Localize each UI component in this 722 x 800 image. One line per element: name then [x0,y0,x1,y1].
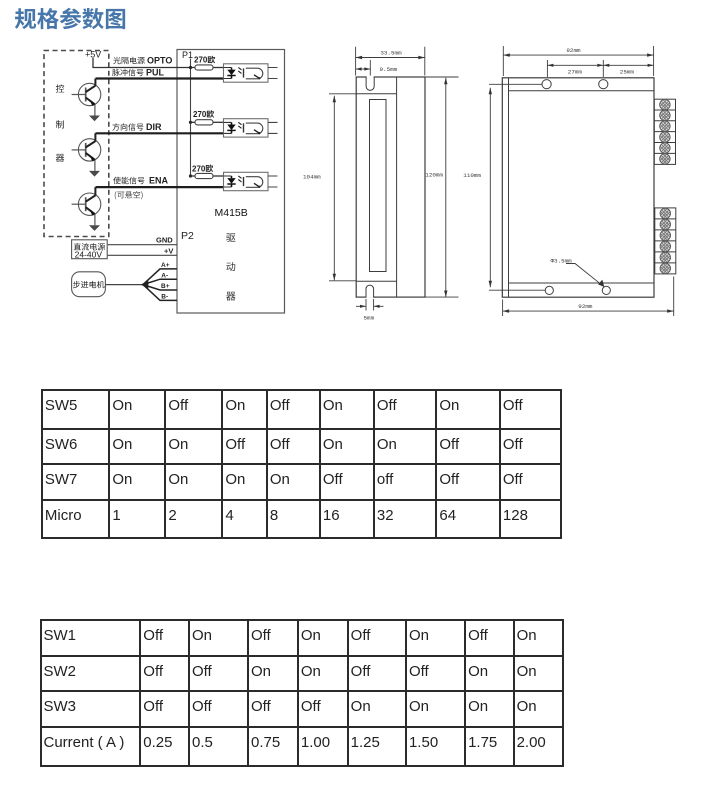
svg-text:9.5mm: 9.5mm [380,66,398,73]
svg-text:104mm: 104mm [303,173,321,180]
svg-text:24-40V: 24-40V [75,250,103,260]
svg-text:M415B: M415B [215,207,248,219]
svg-text:27mm: 27mm [568,68,583,75]
svg-text:B+: B+ [161,283,170,290]
svg-text:OPTO: OPTO [147,56,172,66]
svg-text:25mm: 25mm [620,68,635,75]
svg-text:DIR: DIR [146,122,162,132]
svg-text:92mm: 92mm [566,47,581,54]
svg-text:ENA: ENA [149,176,169,186]
svg-text:Φ3.5mm: Φ3.5mm [551,257,573,264]
svg-text:B-: B- [161,294,168,301]
svg-text:+5V: +5V [85,50,101,60]
svg-text:33.5mm: 33.5mm [380,50,402,57]
svg-text:5mm: 5mm [364,314,375,321]
svg-text:270: 270 [192,164,206,173]
svg-text:110mm: 110mm [463,172,481,179]
svg-text:PUL: PUL [146,68,165,78]
svg-text:+V: +V [164,246,173,255]
svg-text:A-: A- [161,272,168,279]
svg-text:120mm: 120mm [425,171,443,178]
svg-text:270: 270 [193,110,207,119]
svg-text:270: 270 [194,56,208,65]
svg-text:P1: P1 [182,50,193,60]
svg-text:P2: P2 [181,230,194,242]
svg-text:92mm: 92mm [578,303,593,310]
svg-text:A+: A+ [161,262,170,269]
svg-text:GND: GND [156,236,173,245]
